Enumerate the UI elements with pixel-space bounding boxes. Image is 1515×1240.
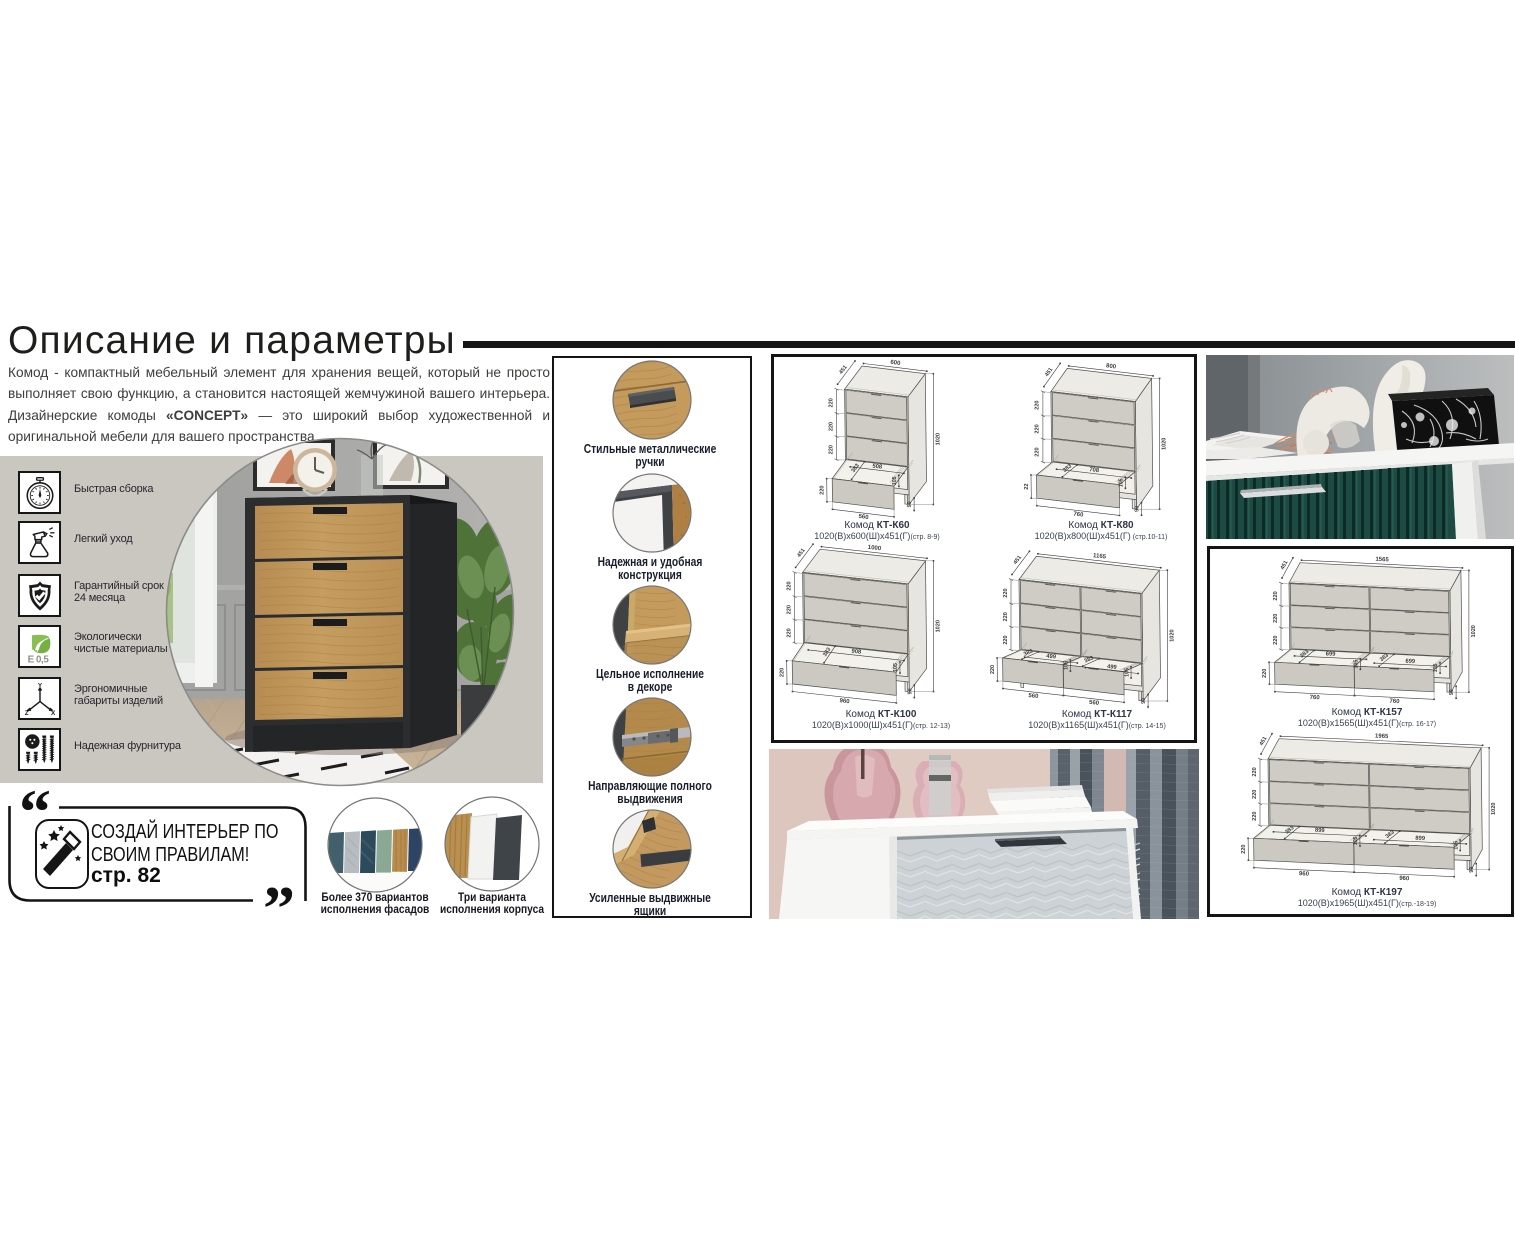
svg-text:220: 220 (786, 581, 792, 590)
svg-text:220: 220 (1035, 401, 1041, 410)
svg-text:90: 90 (907, 688, 913, 694)
svg-text:1020(В)x1965(Ш)x451(Г)(стр.-18: 1020(В)x1965(Ш)x451(Г)(стр.-18-19) (1298, 898, 1437, 908)
svg-text:90: 90 (1469, 867, 1475, 873)
svg-text:451: 451 (1280, 560, 1290, 571)
svg-text:708: 708 (1089, 467, 1100, 474)
svg-text:Комод КТ-К157: Комод КТ-К157 (1332, 707, 1403, 718)
svg-text:220: 220 (786, 628, 792, 637)
svg-text:220: 220 (828, 422, 834, 431)
svg-text:1020: 1020 (1471, 625, 1477, 637)
svg-text:220: 220 (1252, 767, 1258, 776)
svg-text:105: 105 (893, 663, 899, 672)
svg-text:1020: 1020 (935, 433, 941, 445)
svg-text:499: 499 (1107, 664, 1118, 671)
svg-text:499: 499 (1046, 653, 1057, 660)
svg-text:1020: 1020 (1491, 802, 1497, 814)
svg-text:Комод КТ-К100: Комод КТ-К100 (846, 709, 917, 720)
svg-text:Комод КТ-К80: Комод КТ-К80 (1068, 520, 1134, 531)
svg-text:1020(В)x800(Ш)x451(Г) (стр.10-: 1020(В)x800(Ш)x451(Г) (стр.10-11) (1035, 531, 1168, 541)
svg-text:1165: 1165 (1093, 553, 1107, 560)
svg-text:220: 220 (820, 486, 826, 495)
svg-text:Комод КТ-К60: Комод КТ-К60 (844, 520, 910, 531)
svg-text:1020: 1020 (936, 620, 942, 632)
svg-text:1020(В)x1165(Ш)x451(Г)(стр. 14: 1020(В)x1165(Ш)x451(Г)(стр. 14-15) (1028, 720, 1166, 730)
svg-text:220: 220 (786, 605, 792, 614)
svg-text:1020(В)x1000(Ш)x451(Г)(стр. 12: 1020(В)x1000(Ш)x451(Г)(стр. 12-13) (812, 720, 950, 730)
svg-text:220: 220 (1003, 612, 1009, 621)
svg-text:90: 90 (1449, 689, 1455, 695)
svg-text:Комод КТ-К117: Комод КТ-К117 (1062, 709, 1133, 720)
svg-text:220: 220 (1273, 614, 1279, 623)
svg-text:Y: Y (37, 682, 42, 689)
svg-text:451: 451 (796, 548, 806, 559)
svg-text:220: 220 (1252, 812, 1258, 821)
svg-text:760: 760 (1073, 512, 1084, 519)
svg-text:451: 451 (1013, 555, 1023, 566)
svg-text:451: 451 (1044, 367, 1054, 378)
svg-text:105: 105 (1354, 660, 1360, 669)
svg-text:220: 220 (1035, 447, 1041, 456)
svg-text:Комод КТ-К197: Комод КТ-К197 (1332, 887, 1403, 898)
svg-text:220: 220 (1003, 635, 1009, 644)
svg-text:560: 560 (1089, 700, 1100, 707)
svg-text:699: 699 (1326, 651, 1337, 657)
svg-text:220: 220 (990, 665, 996, 674)
svg-text:960: 960 (1299, 871, 1310, 877)
svg-text:220: 220 (828, 398, 834, 407)
svg-text:90: 90 (1141, 698, 1147, 704)
svg-text:1020(В)x1565(Ш)x451(Г)(стр. 16: 1020(В)x1565(Ш)x451(Г)(стр. 16-17) (1298, 718, 1436, 728)
svg-text:220: 220 (1252, 790, 1258, 799)
svg-text:560: 560 (1028, 693, 1039, 700)
svg-text:105: 105 (1124, 668, 1130, 677)
svg-text:760: 760 (1389, 699, 1400, 705)
svg-text:105: 105 (1353, 836, 1359, 845)
svg-text:451: 451 (1259, 736, 1269, 747)
svg-text:220: 220 (1035, 424, 1041, 433)
svg-text:899: 899 (1315, 828, 1326, 834)
svg-text:E 0,5: E 0,5 (27, 654, 49, 663)
svg-text:1020(В)x600(Ш)x451(Г)(стр. 8-9: 1020(В)x600(Ш)x451(Г)(стр. 8-9) (814, 531, 939, 541)
svg-text:600: 600 (890, 360, 901, 367)
svg-text:105: 105 (1064, 661, 1070, 670)
svg-text:Z: Z (24, 710, 28, 716)
svg-text:220: 220 (1273, 591, 1279, 600)
svg-text:1000: 1000 (867, 545, 882, 553)
svg-text:899: 899 (1415, 836, 1426, 842)
svg-text:90: 90 (907, 501, 913, 507)
svg-text:220: 220 (780, 668, 786, 677)
svg-text:960: 960 (1399, 876, 1410, 882)
svg-text:X: X (51, 710, 56, 716)
svg-text:1965: 1965 (1375, 734, 1389, 741)
svg-text:1020: 1020 (1169, 629, 1175, 641)
svg-text:220: 220 (1003, 588, 1009, 597)
svg-text:220: 220 (828, 445, 834, 454)
svg-text:105: 105 (1433, 663, 1439, 672)
svg-text:220: 220 (1262, 669, 1268, 678)
svg-text:220: 220 (1273, 636, 1279, 645)
svg-text:22: 22 (1024, 483, 1030, 489)
svg-text:508: 508 (872, 464, 883, 471)
svg-text:760: 760 (1310, 695, 1321, 701)
svg-text:105: 105 (1453, 841, 1459, 850)
svg-text:220: 220 (1241, 845, 1247, 854)
svg-text:451: 451 (838, 364, 848, 375)
svg-text:1020: 1020 (1162, 438, 1168, 450)
svg-text:908: 908 (851, 649, 862, 656)
svg-text:699: 699 (1405, 659, 1416, 665)
svg-text:960: 960 (839, 698, 850, 705)
svg-text:105: 105 (892, 476, 898, 485)
svg-text:1565: 1565 (1375, 557, 1389, 564)
svg-text:800: 800 (1106, 363, 1117, 370)
svg-text:105: 105 (1119, 478, 1125, 487)
svg-text:90: 90 (1135, 506, 1141, 512)
